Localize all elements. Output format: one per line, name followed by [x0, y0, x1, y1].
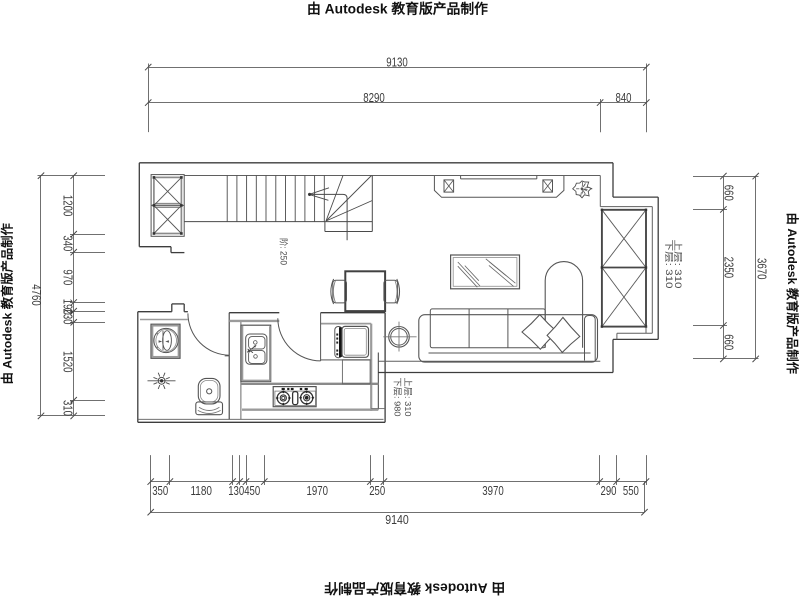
- svg-text:1970: 1970: [306, 483, 328, 498]
- svg-text:310: 310: [61, 400, 76, 416]
- svg-text:8290: 8290: [363, 90, 385, 105]
- svg-text:下层: 310: 下层: 310: [664, 240, 674, 289]
- svg-text:970: 970: [61, 269, 76, 285]
- svg-text:由 Autodesk 教育版产品制作: 由 Autodesk 教育版产品制作: [324, 580, 505, 596]
- svg-text:840: 840: [616, 90, 632, 105]
- svg-text:230: 230: [61, 309, 76, 325]
- svg-text:由 Autodesk 教育版产品制作: 由 Autodesk 教育版产品制作: [307, 0, 488, 16]
- svg-text:上层: 310: 上层: 310: [403, 378, 413, 417]
- svg-text:由 Autodesk 教育版产品制作: 由 Autodesk 教育版产品制作: [0, 222, 15, 384]
- svg-text:660: 660: [721, 334, 736, 350]
- svg-text:550: 550: [623, 483, 639, 498]
- svg-text:1200: 1200: [61, 195, 76, 217]
- svg-text:2350: 2350: [721, 257, 736, 279]
- svg-text:350: 350: [152, 483, 168, 498]
- svg-text:290: 290: [601, 483, 617, 498]
- svg-text:340: 340: [61, 235, 76, 251]
- svg-text:4760: 4760: [29, 284, 44, 306]
- svg-text:由 Autodesk 教育版产品制作: 由 Autodesk 教育版产品制作: [785, 213, 800, 375]
- svg-text:250: 250: [369, 483, 385, 498]
- svg-text:下层: 980: 下层: 980: [393, 378, 403, 417]
- svg-text:1520: 1520: [61, 351, 76, 373]
- svg-text:3970: 3970: [482, 483, 504, 498]
- svg-text:450: 450: [244, 483, 260, 498]
- svg-text:660: 660: [721, 185, 736, 201]
- svg-text:9140: 9140: [385, 512, 409, 527]
- svg-text:阶: 250: 阶: 250: [278, 238, 289, 265]
- svg-text:3670: 3670: [754, 258, 769, 280]
- svg-text:130: 130: [228, 483, 244, 498]
- svg-text:1180: 1180: [190, 483, 212, 498]
- svg-text:9130: 9130: [386, 54, 408, 69]
